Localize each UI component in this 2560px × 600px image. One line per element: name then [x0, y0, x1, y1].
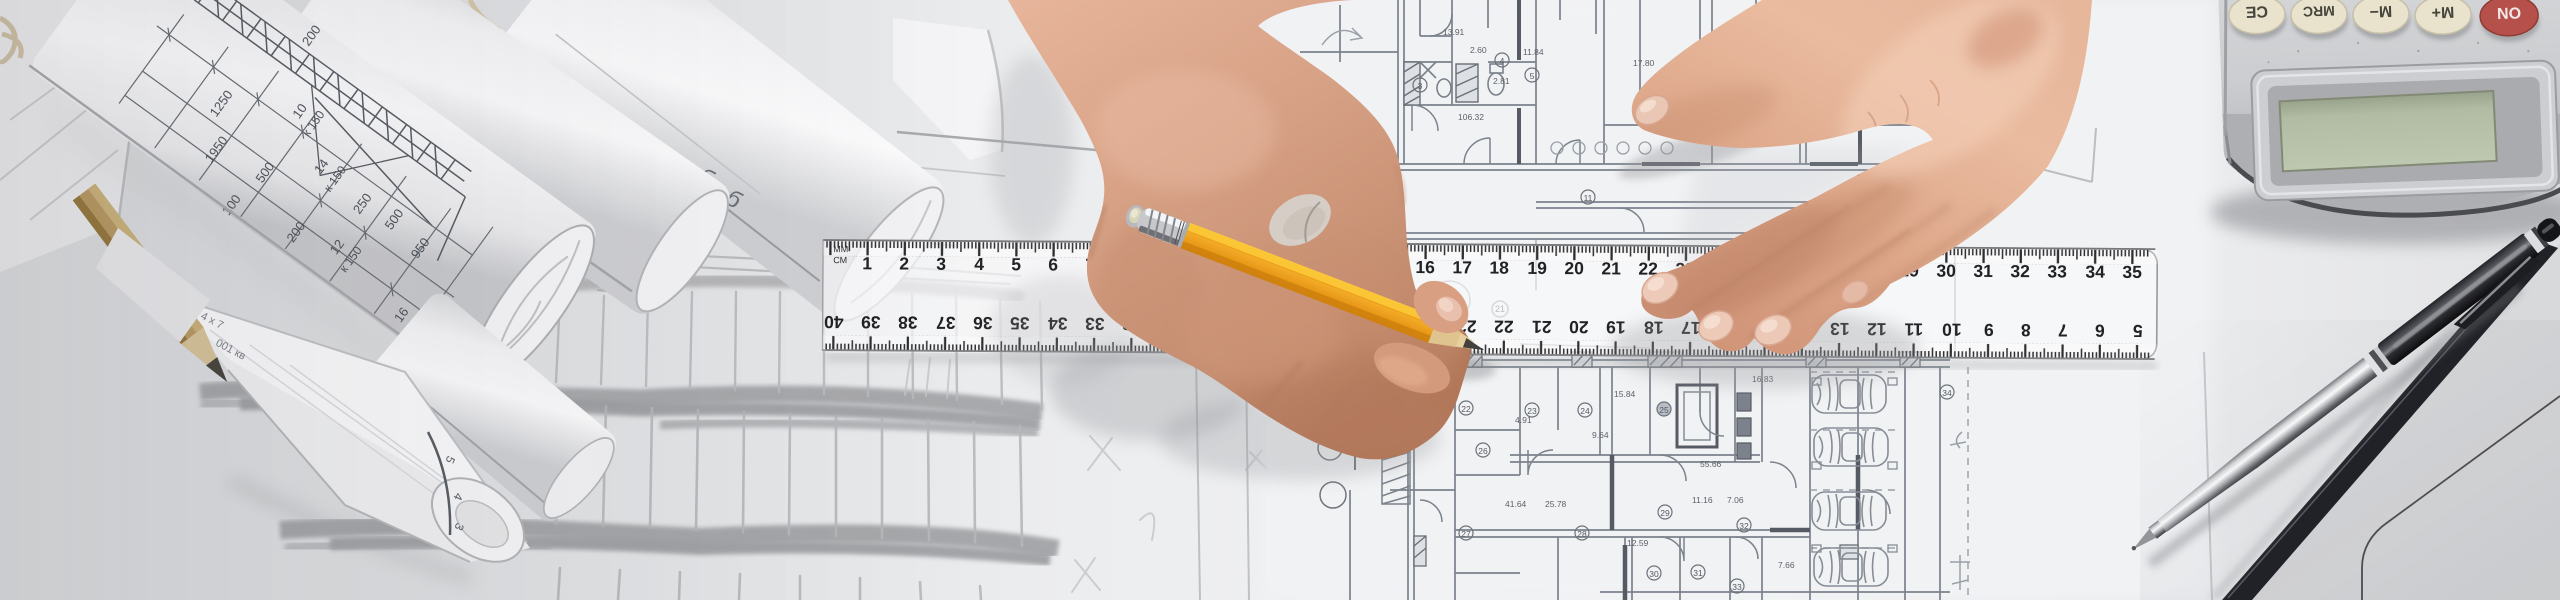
svg-text:35: 35 — [2122, 262, 2142, 282]
svg-text:CE: CE — [2245, 2, 2268, 20]
svg-text:32: 32 — [2010, 261, 2030, 281]
svg-text:41.64: 41.64 — [1505, 499, 1527, 509]
svg-text:6: 6 — [1048, 255, 1058, 275]
svg-text:16: 16 — [1415, 257, 1435, 277]
svg-text:33: 33 — [2047, 261, 2067, 281]
svg-text:33: 33 — [1732, 582, 1742, 592]
svg-text:ON: ON — [2497, 3, 2522, 21]
svg-text:32: 32 — [1739, 521, 1749, 531]
svg-text:7: 7 — [2058, 320, 2068, 340]
svg-text:11.84: 11.84 — [1523, 47, 1544, 57]
svg-text:34: 34 — [1942, 388, 1952, 398]
svg-text:9.64: 9.64 — [1592, 430, 1609, 440]
svg-text:3: 3 — [1418, 81, 1423, 91]
svg-text:11.16: 11.16 — [1692, 495, 1713, 505]
svg-text:27: 27 — [1461, 529, 1471, 539]
svg-text:28: 28 — [1577, 529, 1587, 539]
svg-text:M−: M− — [2369, 2, 2392, 20]
svg-text:34: 34 — [2085, 262, 2105, 282]
svg-text:29: 29 — [1660, 508, 1670, 518]
svg-text:M+: M+ — [2431, 3, 2454, 21]
svg-text:10: 10 — [1942, 320, 1962, 340]
svg-text:25.78: 25.78 — [1545, 499, 1567, 509]
svg-text:22: 22 — [1461, 404, 1471, 414]
svg-text:19: 19 — [1527, 258, 1547, 278]
svg-text:17: 17 — [1452, 257, 1472, 277]
svg-text:12.59: 12.59 — [1627, 538, 1649, 548]
svg-text:8: 8 — [2021, 320, 2031, 340]
svg-text:2.60: 2.60 — [1470, 45, 1487, 55]
svg-text:15.84: 15.84 — [1614, 389, 1636, 399]
svg-text:24: 24 — [1580, 406, 1590, 416]
svg-text:5: 5 — [1011, 254, 1021, 274]
svg-text:21: 21 — [1601, 258, 1621, 278]
svg-text:30: 30 — [1649, 569, 1659, 579]
svg-text:MRC: MRC — [2303, 3, 2335, 20]
svg-text:4.91: 4.91 — [1515, 415, 1532, 425]
svg-text:7.66: 7.66 — [1778, 560, 1795, 570]
svg-text:4: 4 — [1500, 56, 1505, 66]
svg-text:7.06: 7.06 — [1727, 495, 1744, 505]
svg-text:22: 22 — [1494, 317, 1514, 337]
svg-text:25: 25 — [1659, 405, 1669, 415]
svg-text:9: 9 — [1984, 320, 1994, 340]
svg-text:13.91: 13.91 — [1443, 27, 1465, 37]
svg-text:20: 20 — [1564, 258, 1584, 278]
svg-text:30: 30 — [1936, 261, 1956, 281]
svg-text:6: 6 — [2095, 321, 2105, 341]
svg-text:20: 20 — [1569, 317, 1589, 337]
svg-text:17.80: 17.80 — [1633, 58, 1655, 68]
svg-text:2.81: 2.81 — [1493, 76, 1510, 86]
svg-text:11: 11 — [1584, 193, 1593, 203]
svg-text:31: 31 — [1973, 261, 1993, 281]
svg-text:26: 26 — [1478, 446, 1488, 456]
svg-text:106.32: 106.32 — [1458, 112, 1484, 122]
svg-text:31: 31 — [1693, 568, 1703, 578]
svg-text:55.66: 55.66 — [1700, 459, 1722, 469]
svg-text:18: 18 — [1489, 258, 1509, 278]
svg-text:5: 5 — [1530, 71, 1535, 81]
svg-text:21: 21 — [1532, 317, 1552, 337]
